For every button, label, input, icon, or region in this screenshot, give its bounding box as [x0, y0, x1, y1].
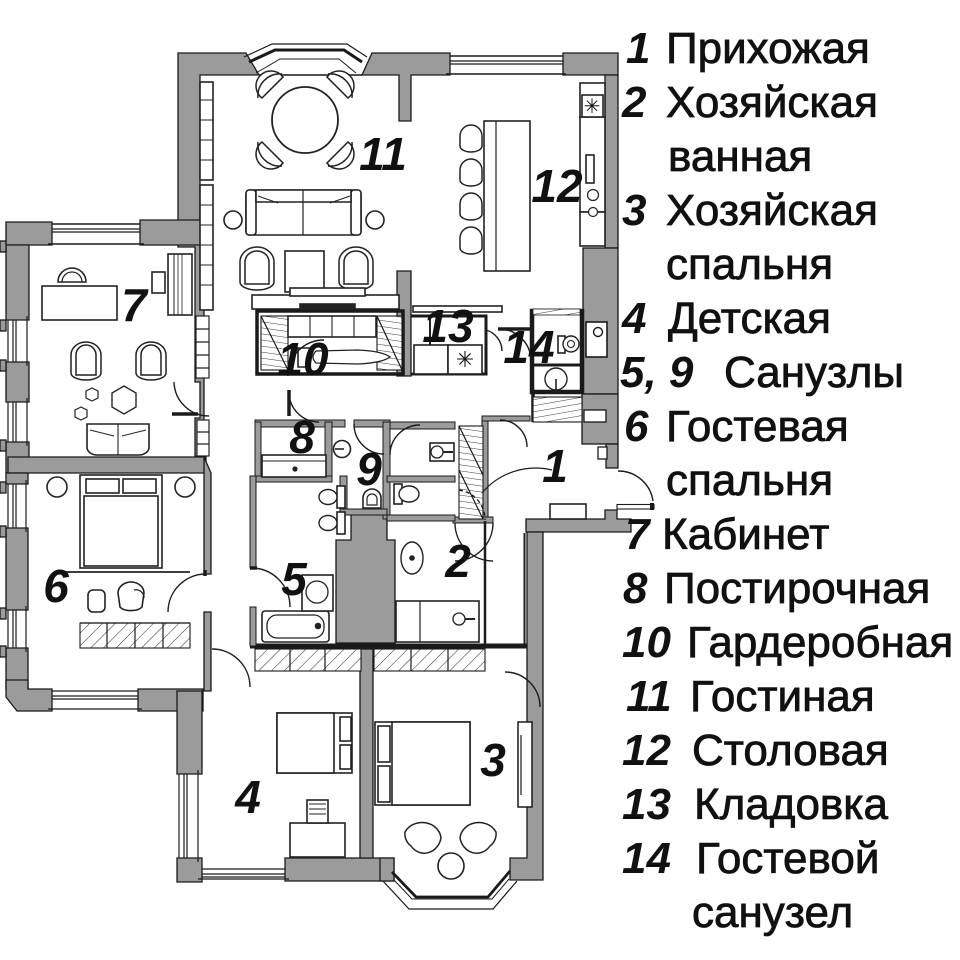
- svg-text:8: 8: [289, 411, 315, 463]
- svg-text:6: 6: [624, 402, 649, 451]
- svg-text:5, 9: 5, 9: [620, 348, 694, 397]
- svg-text:13: 13: [422, 300, 474, 352]
- svg-text:ванная: ванная: [668, 132, 812, 181]
- svg-text:Гостевой: Гостевой: [696, 834, 879, 883]
- svg-text:Постирочная: Постирочная: [664, 564, 930, 613]
- svg-text:5: 5: [281, 553, 308, 605]
- svg-text:2: 2: [444, 535, 471, 587]
- svg-text:Кабинет: Кабинет: [662, 510, 829, 559]
- svg-text:✳: ✳: [584, 96, 601, 118]
- svg-text:6: 6: [43, 560, 69, 612]
- svg-text:11: 11: [626, 672, 672, 721]
- svg-text:Хозяйская: Хозяйская: [666, 186, 878, 235]
- svg-text:9: 9: [356, 443, 382, 495]
- svg-text:4: 4: [234, 771, 261, 823]
- svg-text:Гостиная: Гостиная: [690, 672, 875, 721]
- svg-text:Гардеробная: Гардеробная: [687, 618, 953, 667]
- svg-text:спальня: спальня: [666, 240, 833, 289]
- svg-text:Детская: Детская: [668, 294, 831, 343]
- svg-text:14: 14: [622, 834, 671, 883]
- svg-text:3: 3: [622, 186, 646, 235]
- svg-text:Кладовка: Кладовка: [694, 780, 889, 829]
- svg-text:2: 2: [621, 78, 647, 127]
- svg-text:10: 10: [622, 618, 671, 667]
- svg-text:Прихожая: Прихожая: [666, 24, 870, 73]
- svg-text:Гостевая: Гостевая: [666, 402, 849, 451]
- svg-text:11: 11: [359, 128, 407, 180]
- svg-text:Столовая: Столовая: [692, 726, 889, 775]
- svg-text:3: 3: [480, 734, 506, 786]
- svg-text:12: 12: [622, 726, 671, 775]
- svg-text:Хозяйская: Хозяйская: [666, 78, 878, 127]
- svg-text:10: 10: [277, 333, 329, 385]
- svg-text:7: 7: [625, 510, 652, 559]
- svg-text:1: 1: [626, 24, 650, 73]
- svg-text:13: 13: [622, 780, 671, 829]
- svg-text:1: 1: [542, 440, 568, 492]
- svg-text:12: 12: [531, 160, 583, 212]
- svg-text:спальня: спальня: [666, 456, 833, 505]
- svg-text:14: 14: [503, 321, 554, 373]
- svg-text:7: 7: [121, 279, 149, 331]
- svg-text:Санузлы: Санузлы: [724, 348, 904, 397]
- svg-text:8: 8: [623, 564, 648, 613]
- svg-text:санузел: санузел: [692, 888, 853, 937]
- svg-text:4: 4: [621, 294, 646, 343]
